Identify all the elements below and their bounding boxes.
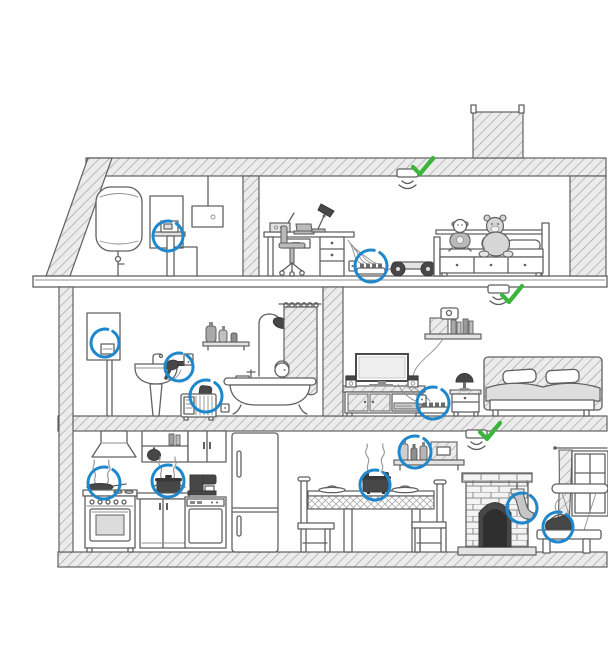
wall-attic-kids-divider <box>243 176 259 276</box>
book-shelf <box>425 318 481 339</box>
floor-band-middle <box>58 416 607 431</box>
signal-wave-icon <box>402 181 413 184</box>
power-strip-living <box>420 403 448 414</box>
desk-lamp <box>312 204 334 232</box>
wall-kids-right <box>570 176 606 276</box>
speaker-right <box>408 376 418 387</box>
counter-cabinet <box>137 493 189 548</box>
signal-wave-icon <box>399 185 416 189</box>
portable-heater <box>181 385 216 420</box>
fridge <box>232 433 278 552</box>
floor-outlet-bathroom <box>221 404 229 412</box>
steam-pan <box>93 460 110 484</box>
bathroom-shelf <box>203 322 249 350</box>
sensor-second-floor <box>488 285 522 305</box>
room-dining <box>298 440 464 552</box>
speaker-left <box>346 376 356 387</box>
water-heater-tank <box>96 187 142 276</box>
room-living-bedroom <box>343 308 602 416</box>
wireless-detector-icon <box>488 285 509 293</box>
toy-doll <box>449 220 471 252</box>
bench <box>537 530 601 553</box>
room-fireplace-corner <box>458 446 608 555</box>
roof-band <box>86 158 606 176</box>
room-bathroom <box>87 303 321 420</box>
coffee-machine <box>188 475 216 495</box>
desk <box>264 232 354 276</box>
hoverboard <box>391 262 435 276</box>
steam-pot-table <box>366 444 385 472</box>
tv-stand <box>343 386 425 416</box>
teddy-bear <box>479 215 513 257</box>
dishwasher <box>185 497 226 548</box>
house-cutaway-illustration <box>0 0 608 653</box>
wall-bath-living-divider <box>323 287 343 416</box>
router <box>441 308 458 319</box>
chimney <box>473 112 523 158</box>
junction-box <box>192 176 223 227</box>
double-bed <box>484 357 602 416</box>
table-lamp <box>456 374 473 392</box>
tv <box>356 354 408 387</box>
laptop <box>294 224 314 234</box>
signal-wave-icon <box>468 446 485 450</box>
signal-wave-icon <box>490 301 507 305</box>
upper-cabinets <box>142 431 226 462</box>
nightstand <box>450 390 481 416</box>
signal-wave-icon <box>471 442 482 445</box>
range-hood <box>92 431 136 457</box>
wall-left <box>59 287 73 552</box>
room-kids <box>264 204 549 276</box>
room-attic <box>96 176 223 276</box>
